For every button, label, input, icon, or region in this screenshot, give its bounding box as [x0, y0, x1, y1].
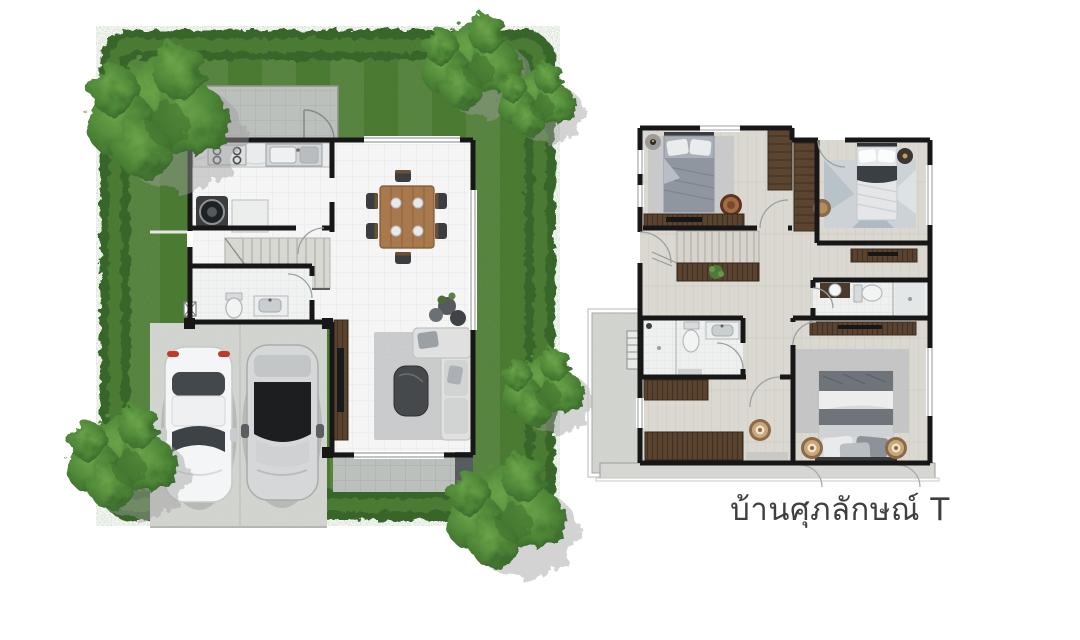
roof [172, 396, 225, 426]
vanity-sink-icon [820, 283, 850, 298]
pouf-icon [801, 437, 823, 459]
bedroom-1 [644, 132, 744, 228]
tray-table-icon [720, 194, 742, 216]
wardrobe-b [794, 143, 816, 231]
upper-floor-plan [588, 124, 939, 487]
rear-glass [172, 372, 225, 396]
bed-icon [815, 371, 897, 463]
floorplan-sheet: บ้านศุภลักษณ์ T [0, 0, 1080, 640]
pouf-icon [885, 437, 907, 459]
side-balcony [588, 309, 643, 477]
coffee-table [394, 366, 428, 416]
bed-icon [664, 132, 714, 212]
dining-chair [395, 170, 411, 182]
ac-unit-icon [627, 331, 638, 369]
panoramic-glass [254, 382, 311, 442]
throw-pillow [417, 331, 439, 350]
taillight [218, 351, 230, 357]
taillight [167, 351, 179, 357]
dining-table [380, 186, 434, 248]
mirror [316, 424, 324, 438]
mirror [241, 424, 249, 438]
mirror [230, 428, 238, 442]
shower-head-icon [646, 323, 652, 329]
drain-icon [908, 297, 912, 301]
wardrobe-a [768, 128, 792, 190]
toilet-icon [854, 285, 882, 302]
toilet-icon [226, 293, 242, 318]
study-cabinet [645, 432, 743, 460]
floorplan-graphic [0, 0, 1080, 640]
toilet-icon [683, 322, 699, 352]
ground-floor-plan [67, 14, 594, 577]
vanity-sink-icon [254, 296, 288, 316]
plan-caption: บ้านศุภลักษณ์ T [700, 484, 980, 534]
dining-chair [395, 252, 411, 264]
blanket [857, 166, 897, 183]
bathroom-mid [641, 318, 743, 377]
kitchen-sink-icon [266, 144, 322, 166]
drain-icon [657, 346, 661, 350]
cabinet [644, 380, 708, 400]
bathroom-ground [192, 268, 312, 322]
console-with-plant [677, 263, 759, 281]
bed-icon [857, 143, 897, 220]
car-silver [241, 345, 324, 508]
trunk [254, 355, 311, 377]
tv-icon [337, 348, 344, 412]
washing-machine-icon [196, 196, 228, 228]
pouf-icon [749, 419, 771, 441]
vanity-sink-icon [706, 322, 739, 339]
